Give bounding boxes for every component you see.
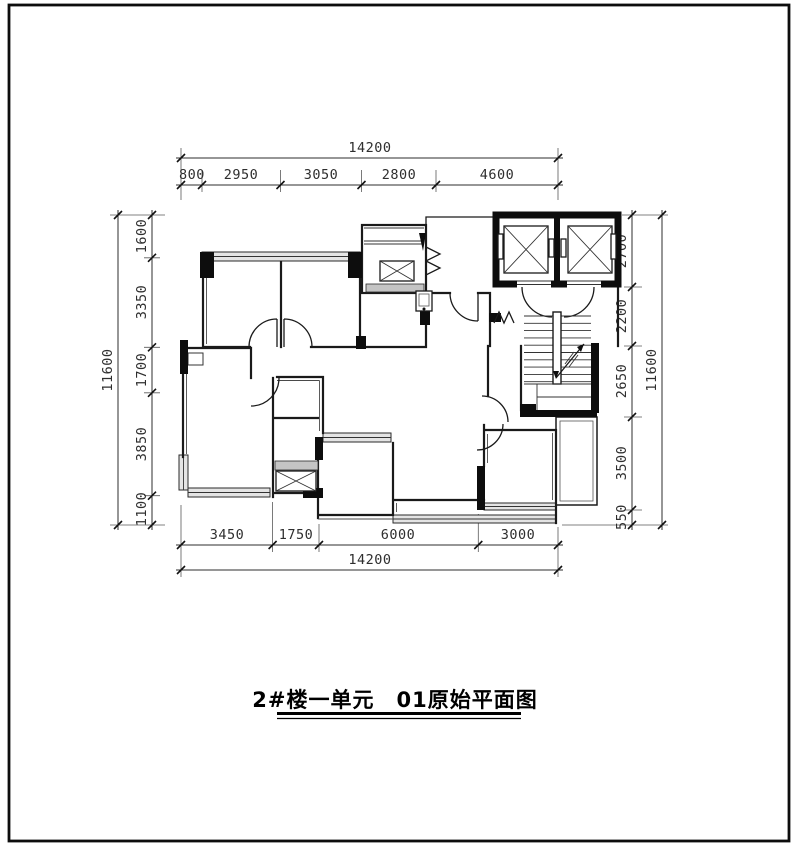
wardrobe-notch <box>188 353 203 365</box>
dimension-left: 11600 1600 3350 1700 3850 1100 <box>100 210 165 530</box>
counterweight <box>549 239 554 257</box>
drawing-sheet: 14200 800 2950 3050 2800 4600 3450 1750 … <box>0 0 800 849</box>
doors <box>249 293 508 450</box>
dim-right-total: 11600 <box>644 348 660 391</box>
bathroom-counter <box>364 241 424 244</box>
columns <box>180 252 536 510</box>
bathroom-outline <box>362 225 426 293</box>
dim-left-seg-2: 1700 <box>134 353 150 388</box>
floor-plan-drawing: 14200 800 2950 3050 2800 4600 3450 1750 … <box>0 0 800 849</box>
kitchen-counter-hatch <box>275 461 318 470</box>
dim-bottom-seg-2: 6000 <box>381 527 416 543</box>
door-unit-entry <box>450 293 478 321</box>
door-bedroom-lower <box>251 378 279 406</box>
door-right-room <box>477 424 503 450</box>
dim-right-seg-4: 550 <box>614 504 630 530</box>
dimension-top: 14200 800 2950 3050 2800 4600 <box>176 140 563 200</box>
dim-left-total: 11600 <box>100 348 116 391</box>
counterweight <box>611 234 616 259</box>
side-shaft-outline <box>556 417 597 505</box>
dim-top-seg-1: 2950 <box>224 167 259 183</box>
staircase <box>494 312 599 417</box>
louvre-door-leaves <box>426 247 440 275</box>
dim-top-seg-0: 800 <box>179 167 205 183</box>
sheet-border <box>9 5 789 841</box>
dim-top-total: 14200 <box>348 140 391 156</box>
title-block: 2#楼一单元 01原始平面图 <box>252 688 537 719</box>
dim-top-seg-3: 2800 <box>382 167 417 183</box>
stair-wall-bottom <box>521 410 597 417</box>
counterweight <box>561 239 566 257</box>
dim-right-seg-1: 2200 <box>614 299 630 334</box>
drawing-title: 2#楼一单元 01原始平面图 <box>252 688 537 712</box>
bathroom-wall-hatch <box>366 284 424 292</box>
elevator-shaft <box>496 215 618 317</box>
dim-left-seg-3: 3850 <box>134 427 150 462</box>
dim-left-seg-0: 1600 <box>134 219 150 254</box>
dim-bottom-seg-3: 3000 <box>501 527 536 543</box>
counterweight <box>498 234 503 259</box>
dim-top-seg-2: 3050 <box>304 167 339 183</box>
dim-bottom-seg-0: 3450 <box>210 527 245 543</box>
door-bedroom-a <box>249 319 277 347</box>
door-bedroom-b <box>284 319 312 347</box>
dim-bottom-seg-1: 1750 <box>279 527 314 543</box>
dim-right-seg-3: 3500 <box>614 446 630 481</box>
dimension-bottom: 3450 1750 6000 3000 14200 <box>176 502 563 577</box>
parapet-step <box>426 217 493 225</box>
dim-left-seg-4: 1100 <box>134 492 150 527</box>
dim-bottom-total: 14200 <box>348 552 391 568</box>
dim-left-seg-1: 3350 <box>134 285 150 320</box>
unit-plan <box>179 215 618 523</box>
door-corridor <box>482 396 508 422</box>
dim-right-seg-2: 2650 <box>614 364 630 399</box>
stair-wall-right <box>591 343 599 413</box>
dim-top-seg-4: 4600 <box>480 167 515 183</box>
